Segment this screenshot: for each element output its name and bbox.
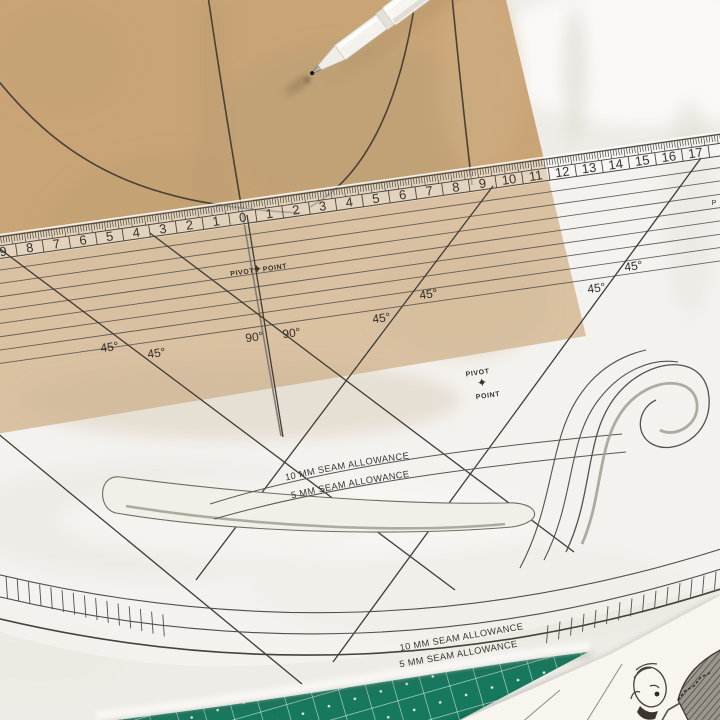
angle-45-label: 45° [146, 345, 166, 361]
angle-45-label: 45° [99, 339, 119, 355]
angle-90-label: 90° [281, 325, 301, 341]
angle-90-label: 90° [244, 329, 264, 345]
angle-45-label: 45° [418, 286, 438, 302]
angle-45-label: 45° [586, 280, 606, 296]
pen-tip-contact-shadow [304, 77, 310, 83]
photo-stage: 98765432101234567891011121314151617 45° … [0, 0, 720, 720]
edge-text-fragment: P [712, 200, 717, 207]
scene-svg: 98765432101234567891011121314151617 45° … [0, 0, 720, 720]
sketch-eye [655, 692, 660, 697]
angle-45-label: 45° [623, 258, 643, 274]
angle-45-label: 45° [371, 310, 391, 326]
